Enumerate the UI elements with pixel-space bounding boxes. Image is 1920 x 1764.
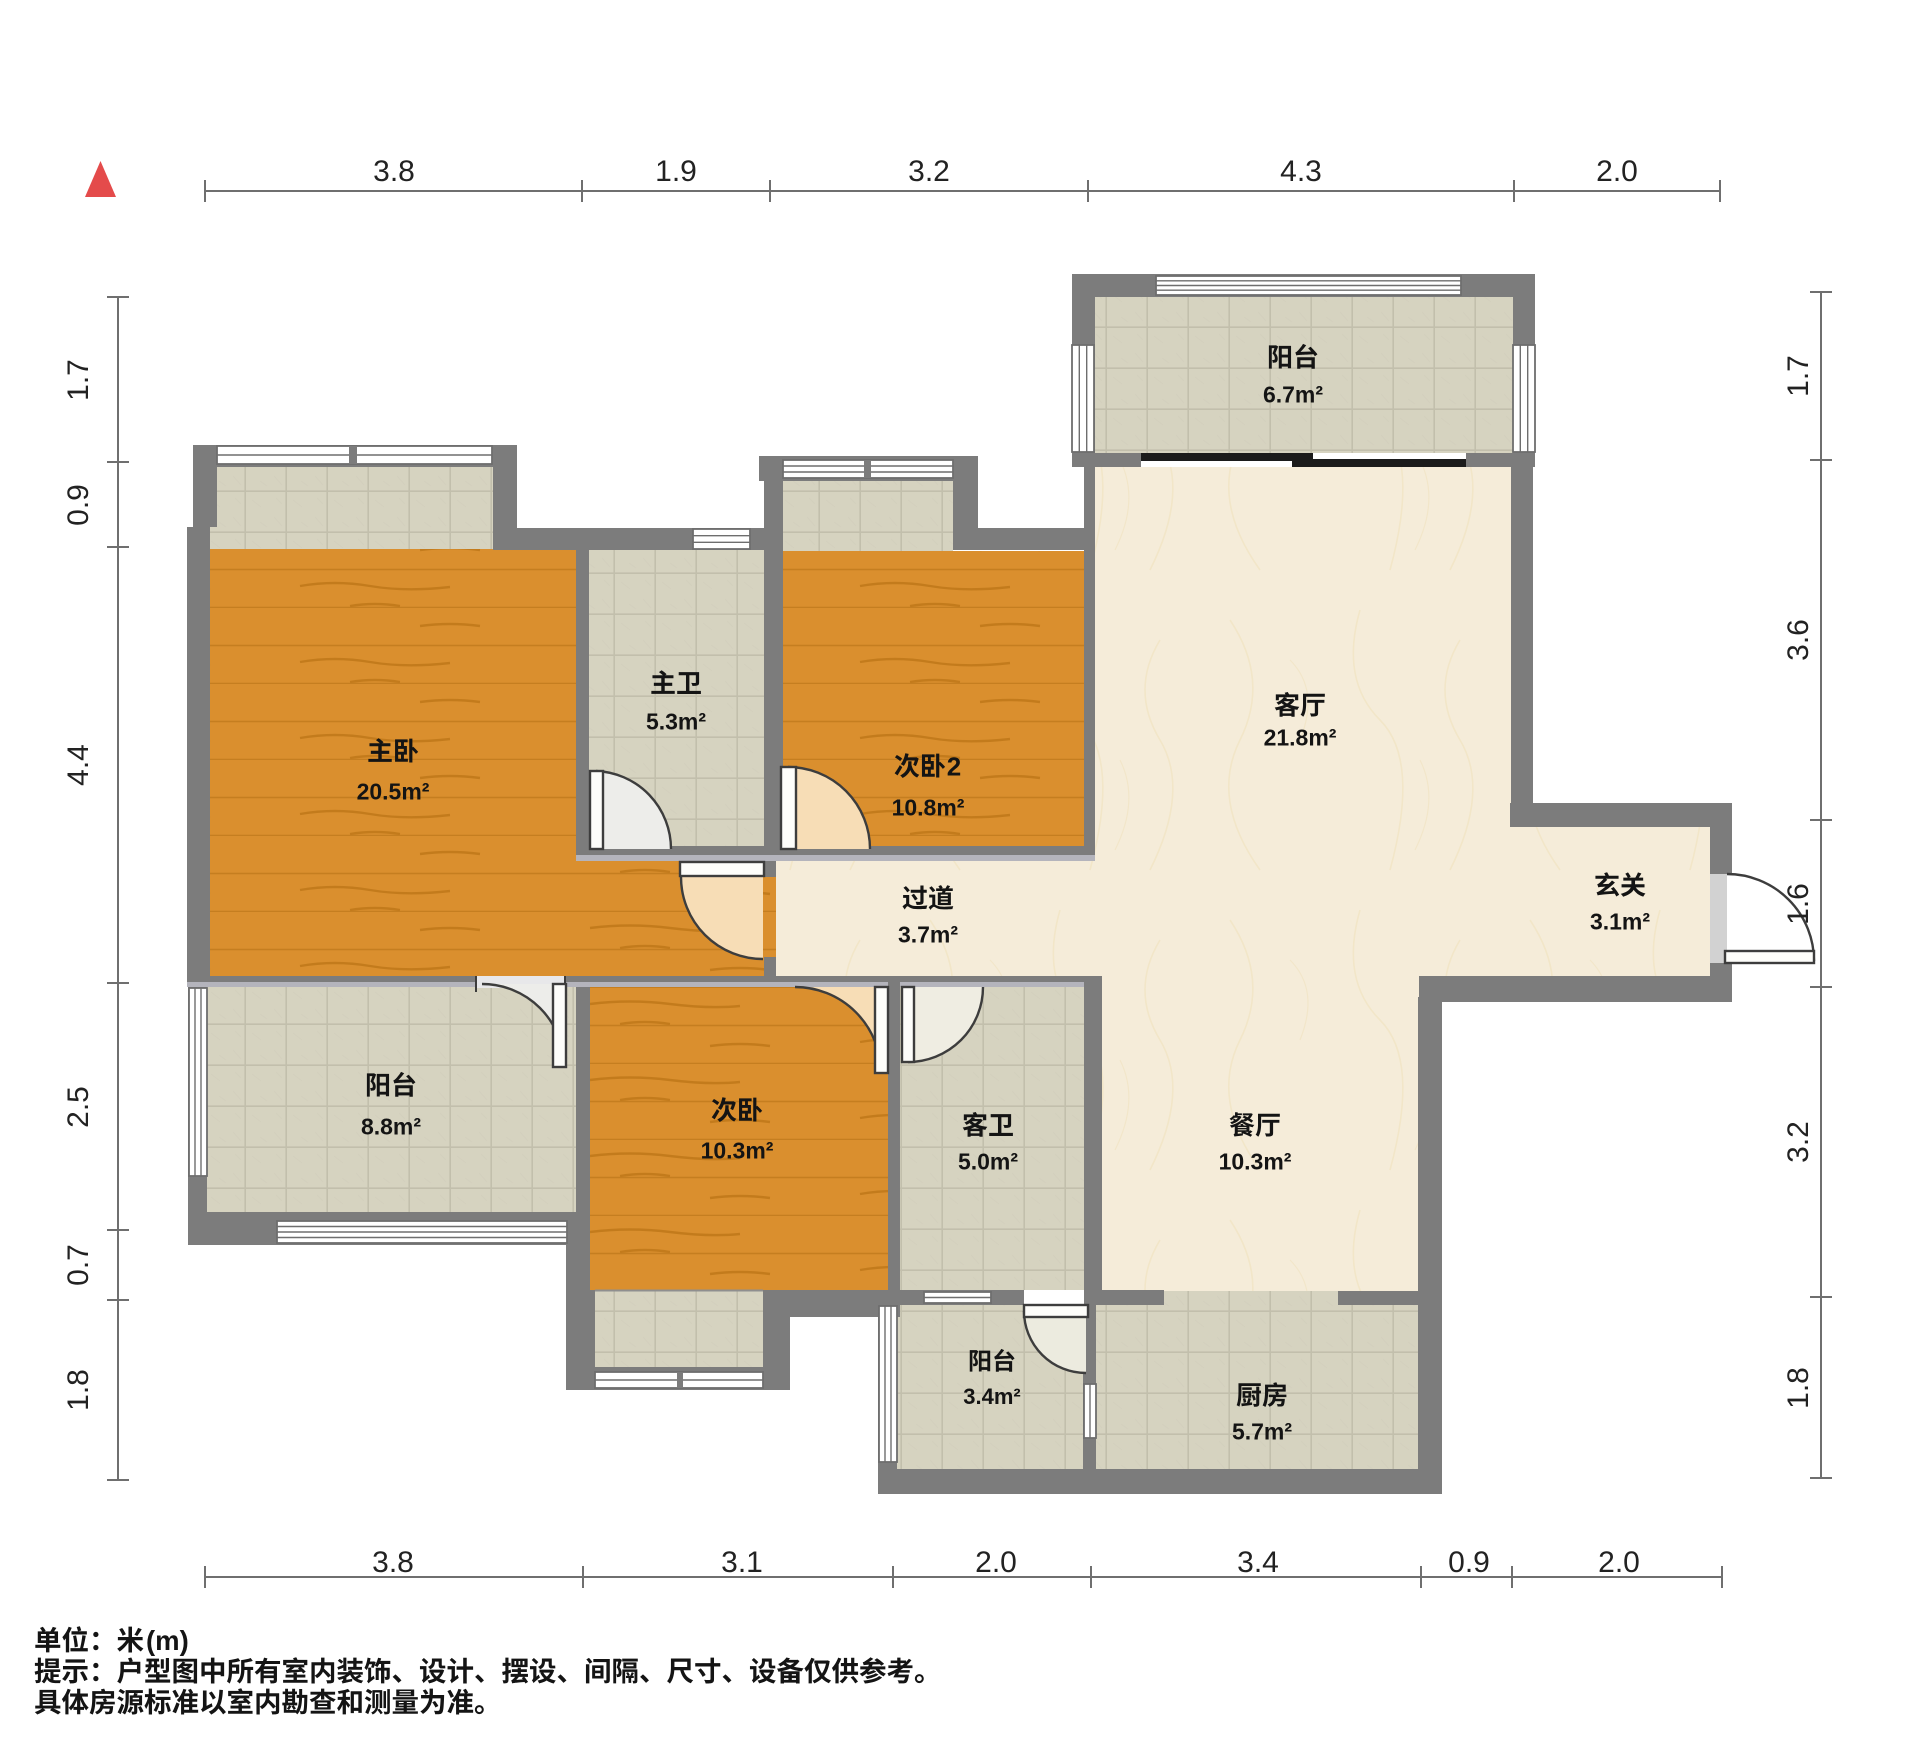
svg-text:1.7: 1.7 — [62, 359, 95, 401]
svg-text:2.0: 2.0 — [1596, 155, 1638, 188]
svg-text:1.9: 1.9 — [655, 155, 697, 188]
svg-text:0.7: 0.7 — [62, 1244, 95, 1286]
svg-text:10.3m²: 10.3m² — [1219, 1148, 1292, 1174]
svg-text:3.2: 3.2 — [908, 155, 950, 188]
svg-text:(m): (m) — [146, 1625, 189, 1656]
svg-text:4.3: 4.3 — [1280, 155, 1322, 188]
svg-text:2.5: 2.5 — [62, 1086, 95, 1128]
svg-text:4.4: 4.4 — [62, 744, 95, 786]
svg-text:1.8: 1.8 — [1782, 1367, 1815, 1409]
svg-text:21.8m²: 21.8m² — [1264, 724, 1337, 750]
svg-text:1.8: 1.8 — [62, 1369, 95, 1411]
svg-text:6.7m²: 6.7m² — [1263, 381, 1323, 407]
svg-text:8.8m²: 8.8m² — [361, 1113, 421, 1139]
svg-text:20.5m²: 20.5m² — [357, 778, 430, 804]
svg-text:3.4: 3.4 — [1237, 1546, 1279, 1579]
svg-text:10.8m²: 10.8m² — [892, 794, 965, 820]
svg-text:5.3m²: 5.3m² — [646, 708, 706, 734]
svg-text:2.0: 2.0 — [1598, 1546, 1640, 1579]
svg-text:1.6: 1.6 — [1782, 883, 1815, 925]
svg-text:3.8: 3.8 — [373, 155, 415, 188]
svg-text:3.2: 3.2 — [1782, 1121, 1815, 1163]
svg-text:3.7m²: 3.7m² — [898, 921, 958, 947]
svg-text:2.0: 2.0 — [975, 1546, 1017, 1579]
svg-text:0.9: 0.9 — [1448, 1546, 1490, 1579]
svg-text:3.1m²: 3.1m² — [1590, 908, 1650, 934]
svg-text:3.8: 3.8 — [372, 1546, 414, 1579]
svg-text:0.9: 0.9 — [62, 484, 95, 526]
svg-text:10.3m²: 10.3m² — [701, 1137, 774, 1163]
svg-text:3.6: 3.6 — [1782, 619, 1815, 661]
svg-text:1.7: 1.7 — [1782, 355, 1815, 397]
svg-text:2: 2 — [947, 751, 961, 781]
svg-text:5.0m²: 5.0m² — [958, 1148, 1018, 1174]
svg-text:3.4m²: 3.4m² — [963, 1384, 1020, 1409]
svg-text:5.7m²: 5.7m² — [1232, 1418, 1292, 1444]
svg-text:3.1: 3.1 — [721, 1546, 763, 1579]
